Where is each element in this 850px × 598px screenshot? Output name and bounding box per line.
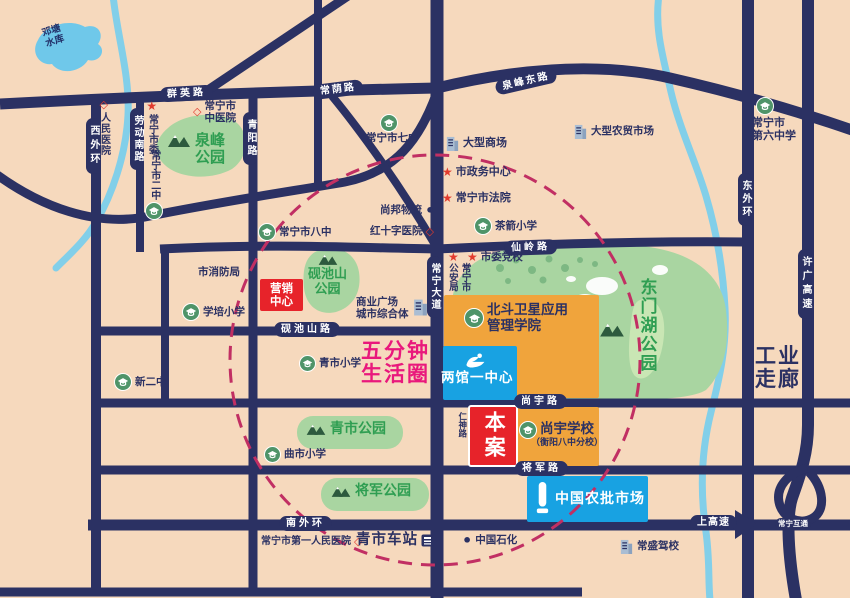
nongpi-market-label: 中国农批市场 (555, 491, 645, 507)
star-icon: ★ (442, 166, 453, 178)
erzhong-school-marker: 常宁市二中 (145, 150, 163, 220)
road-label-yanchishan: 砚池山路 (274, 322, 340, 337)
road-label-shanggaosu: 上高速 (690, 515, 737, 530)
school-icon (114, 373, 132, 391)
hongshizi-marker: 红十字医院 ◇ (370, 225, 434, 237)
qingshixx-marker: 青市小学 (299, 355, 361, 372)
mountain-icon (305, 422, 327, 436)
yanchishan-park-label: 砚池山 公园 (308, 252, 347, 298)
bazhong-marker: 常宁市八中 (258, 223, 332, 241)
renmin-hospital-marker: ◇ 人民医院 (98, 99, 110, 156)
shangyu-school-sub-label: （衡阳八中分校） (531, 438, 603, 448)
fayuan-marker: ★ 常宁市法院 (442, 192, 511, 205)
liangguan-label: 两馆一中心 (441, 371, 514, 387)
beidou-college-label: 北斗卫星应用 管理学院 (464, 303, 568, 334)
building-icon (573, 122, 588, 141)
mountain-icon (166, 132, 192, 148)
industry-corridor-label: 工业 走廊 (755, 345, 801, 390)
school-icon (519, 421, 537, 439)
chezhan-marker: 青市车站 (356, 532, 434, 549)
nongmao-marker: 大型农贸市场 (573, 122, 654, 141)
quanfeng-park-label: 泉峰 公园 (166, 132, 225, 167)
mountain-icon (317, 252, 339, 266)
xinerzhong-marker: 新二中 (114, 373, 167, 391)
school-icon (464, 308, 484, 328)
site-label: 本案 (482, 411, 506, 461)
road-label-laodongnan: 劳动南路 (130, 108, 144, 170)
hospital-diamond-icon: ◇ (193, 106, 201, 117)
marketing-center-label: 营销 中心 (260, 282, 303, 308)
shiwei-marker: ★ 常宁市委 (146, 100, 158, 154)
building-icon (445, 134, 460, 153)
zongheti-marker: 商业广场 城市综合体 (356, 296, 429, 320)
road-label-shangyu: 尚宇路 (514, 394, 567, 409)
road-label-renshen: 仁神路 (456, 412, 466, 438)
school-icon (474, 217, 492, 235)
school-icon (756, 97, 774, 115)
mountain-icon (330, 484, 352, 498)
star-icon: ★ (146, 100, 157, 112)
shihua-marker: • 中国石化 (462, 531, 517, 550)
school-icon (264, 446, 281, 463)
qizhong-label: 常宁市七中 (366, 132, 419, 144)
zhongyiyuan-marker: ◇ 常宁市 中医院 (193, 100, 236, 124)
road-label-qingyang: 青阳路 (243, 112, 257, 165)
road-label-nanwaihuan: 南外环 (279, 516, 332, 531)
zhengwu-marker: ★ 市政务中心 (442, 166, 511, 179)
jiaxiao-marker: 常盛驾校 (619, 537, 679, 556)
road-label-hutong: 常宁互通 (775, 518, 811, 530)
road-label-changningdadao: 常宁大道 (427, 256, 441, 318)
school-icon (182, 303, 200, 321)
shangbang-marker: 尚邦物流 • (380, 201, 435, 220)
xiaofang-label: 市消防局 (198, 266, 240, 278)
hospital-diamond-icon: ◇ (100, 99, 108, 110)
qingshi-park-label: 青市公园 (305, 421, 386, 437)
five-minute-slogan: 五分钟 生活圈 (361, 340, 430, 386)
dangxiao-marker: ★ 市委党校 (467, 251, 523, 263)
road-label-jiangjun: 将军路 (515, 461, 568, 476)
road-label-dongwaihuan: 东外环 (738, 173, 752, 226)
building-icon (412, 296, 429, 318)
qushixx-marker: 曲市小学 (264, 446, 326, 463)
dot-icon: • (462, 531, 472, 550)
mountain-icon (598, 320, 626, 338)
school-icon (145, 202, 163, 220)
school-icon (299, 355, 316, 372)
dongmenhu-park-label: 东门湖公园 (636, 278, 656, 373)
gongan-label: 常宁市 公安局 (445, 263, 471, 292)
school-icon (258, 223, 276, 241)
location-map: 群英路 常荫路 泉峰东路 仙岭路 砚池山路 尚宇路 将军路 南外环 上高速 常宁… (0, 0, 850, 598)
xuepei-marker: 学培小学 (182, 303, 245, 321)
chajian-marker: 茶箭小学 (474, 217, 537, 235)
school-icon (380, 114, 398, 132)
market-tower-icon (534, 480, 551, 518)
star-icon: ★ (448, 251, 459, 263)
shangchang-marker: 大型商场 (445, 134, 507, 153)
hospital-diamond-icon: ◇ (426, 226, 434, 237)
jiangjun-park-label: 将军公园 (330, 483, 411, 499)
station-icon (421, 534, 434, 547)
star-icon: ★ (442, 192, 453, 204)
building-icon (619, 537, 634, 556)
shangyu-school-label: 尚宇学校 (519, 421, 594, 439)
renminyiyuan-marker: 常宁市第一人民医院 ◇ (261, 536, 362, 548)
dot-icon: • (425, 201, 435, 220)
road-label-xuguang: 许广高速 (798, 249, 812, 319)
liuzhong-marker: 常宁市 第六中学 (752, 97, 796, 142)
swan-icon (457, 349, 491, 371)
star-icon: ★ (467, 251, 478, 263)
